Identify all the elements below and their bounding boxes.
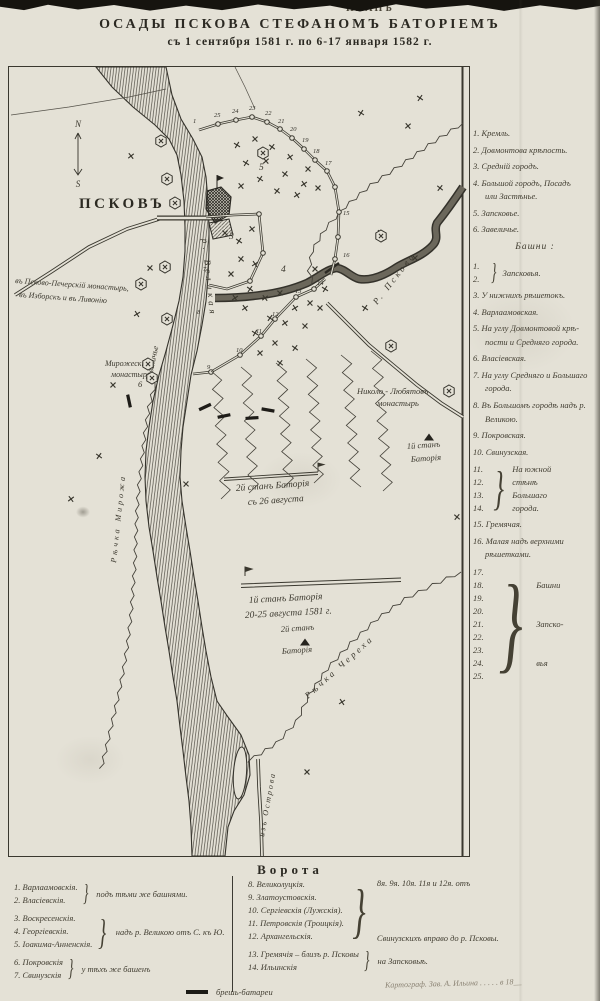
wall-tower (257, 212, 262, 217)
gate-group-note: надъ р. Великою отъ С. къ Ю. (116, 927, 225, 937)
gates-group: 6. Покровскія7. Свинузскія}у тѣхъ же баш… (14, 956, 230, 982)
gate-item: 8. Великолуцкія. (248, 878, 344, 891)
gate-item: 3. Воскресенскія. (14, 912, 92, 925)
church-cross-icon (128, 153, 134, 159)
wall-tower (290, 136, 295, 141)
church-cross-icon (317, 305, 322, 310)
tower-number: 1 (193, 118, 196, 125)
church-cross-icon (417, 95, 423, 101)
church-cross-icon (96, 453, 102, 459)
gate-item: 14. Ильинскія (248, 961, 359, 974)
church-cross-icon (304, 769, 309, 774)
towers-header: Башни : (473, 241, 597, 253)
tower-group-label: Запско- (536, 619, 563, 630)
tower-group-label: стѣнѣ (512, 477, 551, 488)
breach-battery-icon (245, 416, 258, 420)
wall-tower (313, 158, 318, 163)
tower-group-label: Башни (536, 580, 563, 591)
camp-tent-icon (424, 434, 434, 441)
gates-right-column: 8. Великолуцкія.9. Златоустовскія.10. Се… (248, 878, 588, 979)
map-drawing: ПСКОВЪ N S въ Псково-Печерскій монастырь… (9, 67, 469, 856)
tower-number: 14 (317, 280, 324, 287)
monastery-badge-icon (162, 173, 172, 185)
legend-item: 4. Большой городъ, Посадъ (473, 178, 597, 189)
tower-number: 20. (473, 605, 487, 618)
wall-tower (261, 251, 266, 256)
gates-header: Ворота (235, 862, 345, 878)
tower-number: 16 (343, 252, 350, 259)
church-cross-icon (110, 382, 115, 387)
compass-south-label: S (76, 179, 81, 189)
tower-group-label: Большаго (512, 490, 551, 501)
breach-battery-icon (186, 990, 208, 994)
church-cross-icon (183, 481, 188, 486)
monastery-badge-icon (444, 385, 454, 397)
legend-tower-item: 4. Варлаамовская. (473, 307, 597, 318)
wall-tower (337, 210, 342, 215)
church-cross-icon (302, 323, 307, 328)
tower-number: 24. (473, 657, 487, 670)
map-legend: 1. Кремль.2. Довмонтова крѣпость.3. Сред… (473, 128, 597, 687)
mirozhsky-monastery-label: Мирожескій (104, 359, 148, 368)
monastery-badge-icon (147, 372, 157, 384)
tower-number: 25. (473, 670, 487, 683)
church-cross-icon (243, 160, 249, 166)
brace-icon: } (99, 914, 107, 950)
gates-group: 3. Воскресенскія.4. Георгіевскія.5. Іоак… (14, 912, 230, 951)
wall-tower (302, 147, 307, 152)
siege-trench (341, 355, 361, 487)
river-cherekha-label: Рѣчка Череха (302, 633, 376, 701)
compass (74, 133, 82, 175)
wall-tower (333, 185, 338, 190)
camp1-ne-label: 1й станъ (406, 439, 441, 451)
church-cross-icon (282, 320, 288, 326)
brace-icon: } (83, 882, 88, 906)
legend-tower-item-cont: Великою. (473, 414, 597, 425)
camp2-mid-label2: съ 26 августа (248, 494, 305, 508)
wall-tower (336, 235, 341, 240)
kremlin-flag-icon (217, 175, 224, 181)
gate-item: 5. Іоакима-Анненскія. (14, 938, 92, 951)
legend-tower-item: 3. У нижнихъ рѣшетокъ. (473, 290, 597, 301)
wall-tower (278, 127, 283, 132)
tower-number: 2. (473, 273, 487, 286)
church-cross-icon (269, 144, 275, 150)
church-cross-icon (247, 286, 253, 292)
tower-number: 20 (290, 126, 297, 133)
legend-tower-item: 10. Свинузская. (473, 447, 597, 458)
church-cross-icon (454, 514, 459, 519)
column-divider (232, 876, 233, 992)
legend-tower-group: 1.2.}Запсковья. (473, 260, 597, 286)
stream (307, 123, 463, 285)
tower-number: 13 (295, 288, 302, 295)
monastery-badge-icon (170, 197, 180, 209)
camp2-south-label2: Баторія (280, 644, 312, 656)
wall-tower (250, 115, 255, 120)
legend-tower-item: 5. На углу Довмонтовой крѣ- (473, 323, 597, 334)
tower-number: 24 (232, 108, 239, 115)
monastery-badge-icon (258, 147, 268, 159)
city-label: ПСКОВЪ (79, 196, 165, 212)
legend-tower-item: 7. На углу Средняго и Большаго (473, 370, 597, 381)
area-4-label: 4 (281, 265, 286, 275)
gate-item: 13. Гремячія – близъ р. Псковы (248, 948, 359, 961)
gate-group-note: 8я. 9я. 10я. 11я и 12я. отъ (377, 878, 499, 888)
church-cross-icon (339, 699, 345, 705)
tower-number: 25 (214, 112, 221, 119)
legend-item: 1. Кремль. (473, 128, 597, 139)
church-cross-icon (257, 176, 263, 182)
tower-number: 11 (256, 328, 262, 335)
gates-group: 13. Гремячія – близъ р. Псковы14. Ильинс… (248, 948, 588, 974)
church-cross-icon (236, 238, 242, 244)
area-3-label: 3 (228, 232, 234, 242)
wall-tower (312, 287, 317, 292)
brace-icon: } (364, 949, 369, 973)
area-5-label: 5 (259, 163, 264, 173)
tower-number: 21. (473, 618, 487, 631)
tower-number: 12 (272, 311, 279, 318)
monastery-badge-icon (162, 313, 172, 325)
siege-trench (371, 351, 392, 491)
legend-item-cont: или Застѣнье. (473, 191, 597, 202)
camp2-south-label: 2й станъ (280, 622, 315, 634)
tower-number: 22 (265, 110, 272, 117)
church-cross-icon (315, 185, 320, 190)
tower-number: 17. (473, 566, 487, 579)
gate-item: 10. Сергіевскія (Лужскія). (248, 904, 344, 917)
tower-number: 22. (473, 631, 487, 644)
camp2-mid-label: 2й станъ Баторія (235, 478, 309, 494)
streams-and-trails (11, 67, 463, 769)
nikolo-monastery-label2: монастырь (376, 398, 419, 408)
church-cross-icon (287, 154, 293, 160)
gate-item: 4. Георгіевскія. (14, 925, 92, 938)
tower-group-label: вья (536, 658, 563, 669)
legend-item: 6. Завеличье. (473, 224, 597, 235)
mirozhsky-monastery-label2: монастырь (110, 370, 151, 379)
compass-north-label: N (74, 119, 82, 129)
scanned-siege-map-page: ПЛАНЪ ОСАДЫ ПСКОВА СТЕФАНОМЪ БАТОРІЕМЪ с… (0, 0, 600, 1001)
legend-tower-item: 9. Покровская. (473, 430, 597, 441)
tower-number: 19. (473, 592, 487, 605)
church-cross-icon (147, 265, 152, 270)
monastery-badge-icon (386, 340, 396, 352)
church-cross-icon (294, 192, 300, 198)
zavelichye-number: 6 (138, 379, 143, 389)
church-cross-icon (68, 496, 74, 502)
tower-number: 11. (473, 463, 487, 476)
church-cross-icon (301, 181, 307, 187)
wall-tower (216, 122, 221, 127)
gate-group-note: на Запсковьѣ. (378, 956, 428, 966)
tower-group-label: На южной (512, 464, 551, 475)
battery-line-second-camp (224, 463, 324, 481)
brace-icon: } (68, 957, 73, 981)
breach-battery-icon (198, 403, 211, 411)
wall-tower (234, 118, 239, 123)
legend-towers-list: 1.2.}Запсковья.3. У нижнихъ рѣшетокъ.4. … (473, 260, 597, 683)
gates-group: 1. Варлаамовскія.2. Власіевскія.}подъ тѣ… (14, 881, 230, 907)
nikolo-monastery-label: Николо - Любятовъ (356, 386, 429, 396)
tower-number: 15 (343, 210, 350, 217)
gate-item: 11. Петровскія (Троицкія). (248, 917, 344, 930)
church-cross-icon (134, 311, 140, 317)
church-cross-icon (437, 185, 442, 190)
gates-section: Ворота 1. Варлаамовскія.2. Власіевскія.}… (0, 858, 600, 1001)
map-subtitle: съ 1 сентября 1581 г. по 6-17 января 158… (0, 36, 600, 48)
tower-number: 18 (313, 148, 320, 155)
siege-trench (211, 371, 230, 499)
siege-trench (241, 367, 258, 493)
breach-battery-icon (126, 394, 132, 407)
legend-tower-group: 11.12.13.14.}На южнойстѣнѣБольшагогорода… (473, 463, 597, 515)
church-cross-icon (277, 360, 283, 366)
trail (235, 67, 255, 109)
gate-group-note: у тѣхъ же башенъ (82, 964, 151, 974)
battery-line-first-camp (241, 567, 401, 588)
gates-group: 8. Великолуцкія.9. Златоустовскія.10. Се… (248, 878, 588, 943)
church-cross-icon (238, 256, 243, 261)
legend-tower-group: 17.18.19.20.21.22.23.24.25.}БашниЗапско-… (473, 566, 597, 683)
legend-tower-item-cont: пости и Средняго города. (473, 337, 597, 348)
wall-tower (325, 169, 330, 174)
legend-tower-item-cont: города. (473, 383, 597, 394)
road-label-izborsk: въ Изборскъ и въ Ливонію (19, 290, 108, 305)
camp-tent-icon (300, 639, 310, 646)
gate-item: 9. Златоустовскія. (248, 891, 344, 904)
gate-item: 6. Покровскія (14, 956, 63, 969)
monastery-badge-icon (136, 278, 146, 290)
monastery-badge-icon (143, 358, 153, 370)
brace-icon: } (491, 261, 496, 285)
legend-tower-item-cont: рѣшетками. (473, 549, 597, 560)
tower-number: 12. (473, 476, 487, 489)
map-canvas: ПСКОВЪ N S въ Псково-Печерскій монастырь… (8, 66, 470, 857)
brace-icon: } (493, 465, 504, 513)
gate-item: 1. Варлаамовскія. (14, 881, 78, 894)
wall-tower (265, 120, 270, 125)
map-title: ОСАДЫ ПСКОВА СТЕФАНОМЪ БАТОРІЕМЪ (0, 17, 600, 33)
tower-number: 13. (473, 489, 487, 502)
tower-number: 21 (278, 118, 285, 125)
wall-tower (248, 279, 253, 284)
siege-trench (276, 363, 293, 487)
gate-item: 7. Свинузскія (14, 969, 63, 982)
tower-number: 10 (236, 347, 243, 354)
tower-number: 14. (473, 502, 487, 515)
battery-key-label: брешь-батареи (216, 987, 273, 997)
church-cross-icon (238, 183, 243, 188)
legend-tower-item: 15. Гремячая. (473, 519, 597, 530)
gates-left-column: 1. Варлаамовскія.2. Власіевскія.}подъ тѣ… (14, 881, 230, 987)
church-cross-icon (249, 226, 254, 231)
battery-key: брешь-батареи (186, 987, 273, 997)
church-cross-icon (292, 305, 298, 311)
tower-number: 18. (473, 579, 487, 592)
monastery-badge-icon (156, 135, 166, 147)
wall-tower (333, 257, 338, 262)
legend-item: 5. Запсковье. (473, 208, 597, 219)
camp1-south-label: 1й станъ Баторія (249, 591, 323, 606)
legend-tower-item: 6. Власіевская. (473, 353, 597, 364)
church-cross-icon (307, 300, 312, 305)
tower-number: 1. (473, 260, 487, 273)
monastery-badge-icon (160, 261, 170, 273)
tower-number: 19 (302, 137, 309, 144)
torn-paper-edge (0, 0, 600, 14)
legend-tower-item: 16. Малая надъ верхними (473, 536, 597, 547)
wall-tower (294, 295, 299, 300)
river-velikaya (96, 67, 250, 856)
church-cross-icon (272, 340, 277, 345)
tower-group-label: Запсковья. (503, 268, 541, 279)
brace-icon: } (352, 881, 365, 941)
monastery-badge-icon (376, 230, 386, 242)
church-cross-icon (405, 123, 410, 128)
church-cross-icon (362, 305, 368, 311)
camp1-south-label2: 20-25 августа 1581 г. (245, 606, 332, 621)
church-cross-icon (305, 166, 310, 171)
gate-item: 12. Архангельскія. (248, 930, 344, 943)
church-cross-icon (274, 188, 279, 193)
brace-icon: } (499, 570, 523, 678)
breach-battery-icon (217, 413, 230, 419)
kremlin (206, 175, 233, 239)
camp1-ne-label2: Баторія (409, 452, 441, 464)
church-cross-icon (257, 350, 262, 355)
legend-item: 3. Средній городъ. (473, 161, 597, 172)
church-cross-icon (358, 110, 364, 116)
tower-number: 23 (249, 105, 256, 112)
church-cross-icon (242, 305, 248, 311)
gate-group-note: Свинузскихъ вправо до р. Псковы. (377, 933, 499, 943)
tower-number: 23. (473, 644, 487, 657)
church-cross-icon (252, 136, 257, 141)
church-cross-icon (263, 158, 268, 163)
breach-battery-icon (261, 407, 274, 412)
legend-city-parts: 1. Кремль.2. Довмонтова крѣпость.3. Сред… (473, 128, 597, 235)
scan-edge-shadow (594, 0, 600, 1001)
legend-tower-item: 8. Въ Большомъ городѣ надъ р. (473, 400, 597, 411)
church-cross-icon (228, 271, 233, 276)
tower-number: 17 (325, 160, 332, 167)
gate-group-note: подъ тѣми же башнями. (96, 889, 187, 899)
tower-group-label: города. (512, 503, 551, 514)
map-title-block: ОСАДЫ ПСКОВА СТЕФАНОМЪ БАТОРІЕМЪ съ 1 се… (0, 17, 600, 48)
church-cross-icon (292, 345, 298, 351)
church-cross-icon (312, 266, 317, 271)
river-mirozha-label: Рѣчка Мирожа (109, 473, 127, 564)
church-cross-icon (282, 171, 288, 177)
church-cross-icon (234, 142, 240, 148)
legend-item: 2. Довмонтова крѣпость. (473, 145, 597, 156)
gate-item: 2. Власіевскія. (14, 894, 78, 907)
